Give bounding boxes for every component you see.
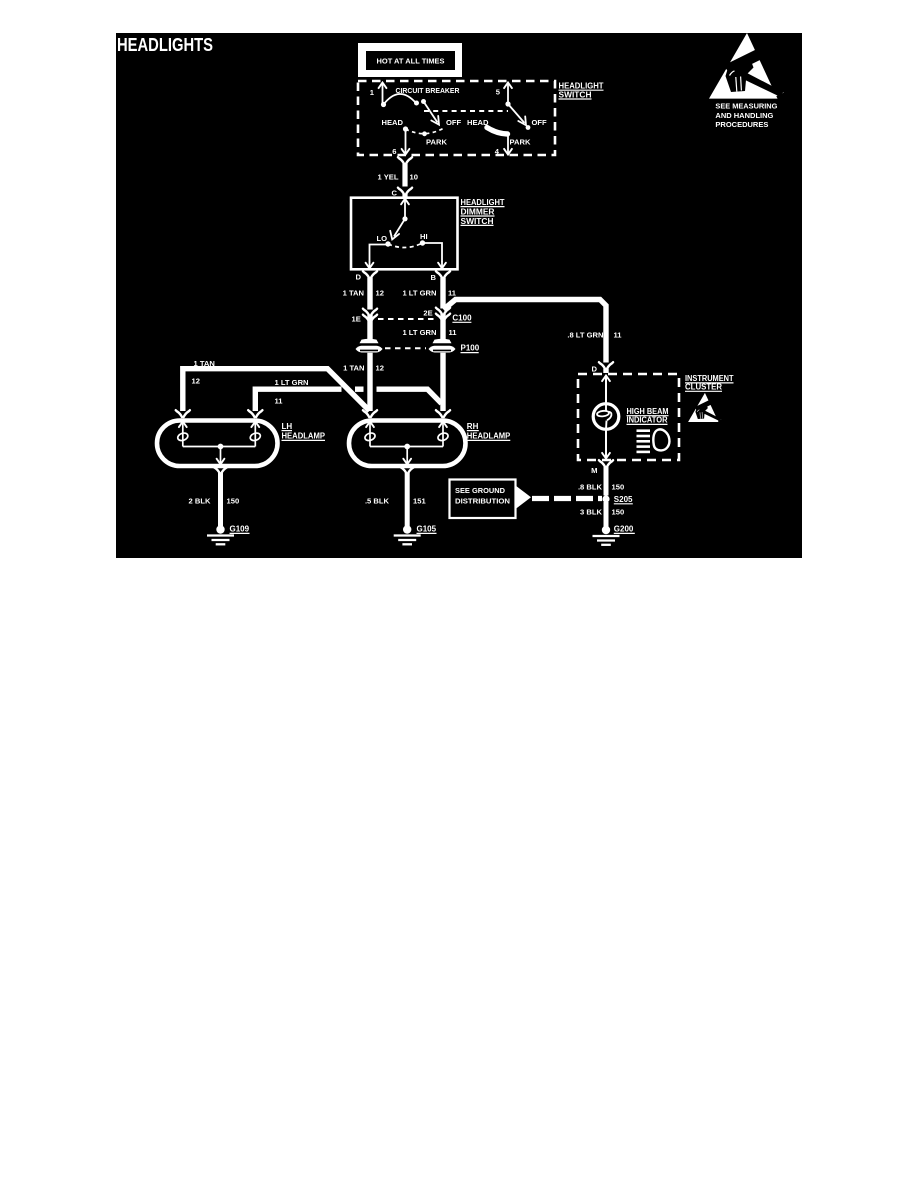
svg-text:CLUSTER: CLUSTER — [685, 383, 722, 392]
svg-text:2E: 2E — [423, 309, 432, 318]
svg-text:P100: P100 — [461, 344, 480, 353]
svg-text:6: 6 — [392, 147, 396, 156]
svg-text:HEADLIGHT: HEADLIGHT — [461, 198, 505, 207]
svg-text:1 YEL: 1 YEL — [378, 172, 399, 181]
svg-text:C: C — [392, 188, 398, 197]
svg-text:INDICATOR: INDICATOR — [627, 416, 668, 425]
svg-text:10: 10 — [410, 172, 418, 181]
svg-text:.5 BLK: .5 BLK — [365, 497, 390, 506]
svg-text:151: 151 — [413, 497, 426, 506]
svg-text:D: D — [356, 273, 362, 282]
svg-text:12: 12 — [376, 364, 384, 373]
svg-text:RH: RH — [467, 422, 479, 431]
svg-text:PARK: PARK — [510, 138, 531, 147]
svg-text:150: 150 — [612, 508, 625, 517]
svg-text:M: M — [591, 466, 597, 475]
svg-text:.8 LT GRN: .8 LT GRN — [567, 331, 603, 340]
svg-text:11: 11 — [448, 289, 457, 298]
svg-text:1E: 1E — [352, 314, 361, 323]
svg-text:3 BLK: 3 BLK — [580, 508, 602, 517]
svg-text:HEADLAMP: HEADLAMP — [282, 432, 326, 441]
svg-text:12: 12 — [192, 376, 200, 385]
svg-text:11: 11 — [614, 331, 623, 340]
svg-text:CIRCUIT BREAKER: CIRCUIT BREAKER — [396, 86, 460, 95]
svg-text:11: 11 — [275, 396, 284, 405]
svg-text:SWITCH: SWITCH — [461, 217, 494, 226]
svg-text:HEADLIGHT: HEADLIGHT — [559, 82, 604, 91]
svg-text:DIMMER: DIMMER — [461, 207, 495, 216]
svg-text:S205: S205 — [614, 495, 633, 504]
svg-text:HEADLAMP: HEADLAMP — [467, 432, 511, 441]
svg-text:1 LT GRN: 1 LT GRN — [402, 328, 436, 337]
svg-text:12: 12 — [376, 289, 384, 298]
svg-text:DISTRIBUTION: DISTRIBUTION — [455, 496, 510, 505]
svg-text:HI: HI — [420, 232, 428, 241]
svg-text:HEAD: HEAD — [382, 118, 404, 127]
svg-text:1 TAN: 1 TAN — [194, 359, 215, 368]
svg-text:HOT AT ALL TIMES: HOT AT ALL TIMES — [377, 56, 445, 65]
svg-text:G105: G105 — [417, 524, 437, 533]
svg-text:LO: LO — [376, 234, 387, 243]
svg-text:PARK: PARK — [426, 138, 447, 147]
svg-text:1 TAN: 1 TAN — [343, 364, 364, 373]
svg-text:G200: G200 — [614, 524, 634, 533]
svg-text:2 BLK: 2 BLK — [189, 497, 211, 506]
svg-text:C100: C100 — [452, 313, 472, 322]
svg-text:11: 11 — [449, 328, 458, 337]
svg-text:AND HANDLING: AND HANDLING — [715, 111, 773, 120]
svg-text:D: D — [592, 365, 598, 374]
svg-text:OFF: OFF — [446, 118, 462, 127]
svg-text:HEADLIGHTS: HEADLIGHTS — [117, 35, 213, 55]
svg-text:SEE MEASURING: SEE MEASURING — [715, 102, 777, 111]
svg-text:1 LT GRN: 1 LT GRN — [275, 378, 309, 387]
svg-text:1 TAN: 1 TAN — [343, 289, 364, 298]
svg-text:PROCEDURES: PROCEDURES — [715, 120, 768, 129]
svg-text:B: B — [431, 273, 437, 282]
svg-text:SEE GROUND: SEE GROUND — [455, 486, 506, 495]
svg-text:1 LT GRN: 1 LT GRN — [402, 289, 436, 298]
svg-text:SWITCH: SWITCH — [559, 90, 592, 99]
svg-text:HIGH BEAM: HIGH BEAM — [627, 407, 669, 416]
svg-text:.8 BLK: .8 BLK — [578, 482, 603, 491]
svg-text:G109: G109 — [230, 524, 250, 533]
svg-text:150: 150 — [612, 482, 625, 491]
svg-text:150: 150 — [227, 497, 240, 506]
svg-text:LH: LH — [282, 422, 293, 431]
svg-text:OFF: OFF — [532, 118, 548, 127]
